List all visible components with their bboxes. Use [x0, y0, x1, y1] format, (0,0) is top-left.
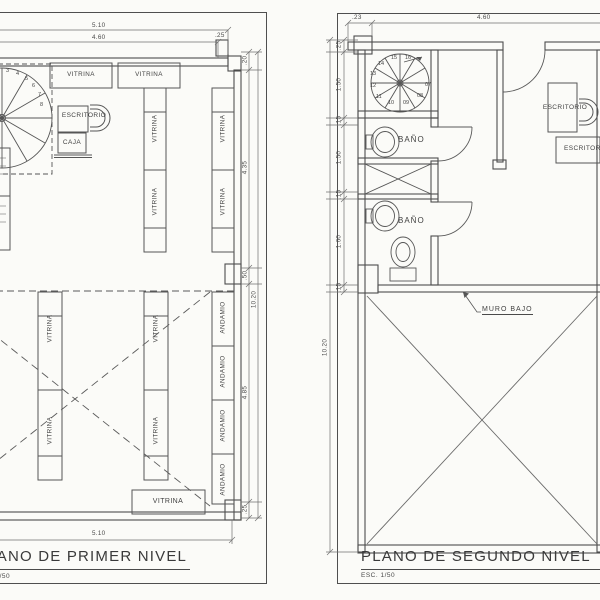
dim-right-lower-first: 4.85: [242, 363, 249, 423]
sink-icon-bath1: [366, 127, 399, 157]
muro-bajo-leader: [463, 292, 481, 312]
desk-label-second-2: ESCRITORIO: [564, 145, 600, 152]
dim-top-left-second: .23: [352, 14, 362, 21]
dim-right-total-first: 10.20: [251, 270, 258, 330]
door-arc-bath1: [438, 127, 472, 161]
stair-step-number: 07: [425, 82, 431, 88]
cabinet-label-vitrina: VITRINA: [153, 401, 160, 461]
plans-linework: [0, 0, 600, 600]
dim-right-wall-first: .20: [242, 31, 249, 91]
stair-step-number: 09: [403, 100, 409, 106]
stair-step-number: 14: [378, 61, 384, 67]
first-plan-cabinets: [0, 63, 234, 514]
stair-step-number: 8: [40, 102, 43, 108]
first-plan-title: PLANO DE PRIMER NIVEL: [0, 548, 187, 565]
dim-top-end-first: .25: [215, 32, 225, 39]
low-wall-label: MURO BAJO: [482, 306, 533, 315]
cabinet-label-vitrina: VITRINA: [56, 71, 106, 78]
dim-right-end-first: .25: [242, 480, 249, 540]
dim-top-inner-second: 4.60: [477, 14, 490, 21]
first-plan-scale: ESC. 1/50: [0, 573, 10, 580]
cashier-label: CAJA: [59, 139, 85, 146]
title-underline: [361, 569, 600, 570]
dim-top-total-first: 5.10: [92, 22, 105, 29]
dim-right-upper-first: 4.35: [242, 138, 249, 198]
dim-left-total-second: 10.20: [322, 318, 329, 378]
desk-label-first: ESCRITORIO: [52, 112, 116, 119]
stair-step-number: 08: [417, 93, 423, 99]
cabinet-label-vitrina: VITRINA: [220, 99, 227, 159]
dim-bottom-total-first: 5.10: [92, 530, 105, 537]
stair-step-number: 5: [25, 76, 28, 82]
cabinet-label-andamio: ANDAMIO: [220, 288, 227, 348]
shaft-cross-box: [365, 164, 431, 194]
stair-step-number: 15: [391, 55, 397, 61]
stair-step-number: 4: [16, 71, 19, 77]
cabinet-label-vitrina: VITRINA: [153, 299, 160, 359]
door-arc-top: [503, 50, 545, 92]
stair-step-number: 6: [32, 83, 35, 89]
stair-step-number: 3: [6, 68, 9, 74]
dim-top-inner-first: 4.60: [92, 34, 105, 41]
scanned-floorplan-canvas: 5.10 4.60 .25 .20 4.35 .50 4.85 .25 10.2…: [0, 0, 600, 600]
stair-step-number: 7: [38, 92, 41, 98]
second-plan-title: PLANO DE SEGUNDO NIVEL: [361, 548, 591, 565]
dim-right-step-first: .50: [242, 246, 249, 306]
stair-step-number: 13: [370, 71, 376, 77]
title-underline: [0, 569, 190, 570]
cabinet-label-andamio: ANDAMIO: [220, 450, 227, 510]
cabinet-label-vitrina: VITRINA: [220, 172, 227, 232]
first-plan-walls: [0, 40, 241, 520]
desk-chair-icon-second: [579, 99, 598, 125]
cabinet-label-vitrina: VITRINA: [152, 99, 159, 159]
second-plan-scale: ESC. 1/50: [361, 572, 395, 579]
void-cross: [367, 296, 597, 544]
stair-step-number: 16: [405, 55, 411, 61]
desk-label-second-1: ESCRITORIO: [536, 104, 594, 111]
cabinet-label-andamio: ANDAMIO: [220, 396, 227, 456]
dim-left-chain: .15: [336, 258, 343, 318]
cabinet-label-andamio: ANDAMIO: [220, 342, 227, 402]
second-plan-dimension-lines: [326, 20, 600, 555]
door-arc-bath2: [438, 202, 472, 236]
stair-step-number: 12: [370, 83, 376, 89]
sink-icon-bath2: [366, 201, 399, 231]
stair-step-number: 11: [376, 94, 382, 100]
bathroom-label-1: BAÑO: [398, 135, 425, 144]
toilet-icon: [390, 237, 416, 281]
bathroom-label-2: BAÑO: [398, 216, 425, 225]
cabinet-label-vitrina: VITRINA: [47, 401, 54, 461]
stair-step-number: 10: [388, 100, 394, 106]
cabinet-label-vitrina: VITRINA: [138, 498, 198, 505]
dashed-floor-cross: [0, 291, 234, 506]
cabinet-label-vitrina: VITRINA: [124, 71, 174, 78]
cabinet-label-vitrina: VITRINA: [47, 299, 54, 359]
cabinet-label-vitrina: VITRINA: [152, 172, 159, 232]
second-plan-walls: [348, 36, 600, 553]
